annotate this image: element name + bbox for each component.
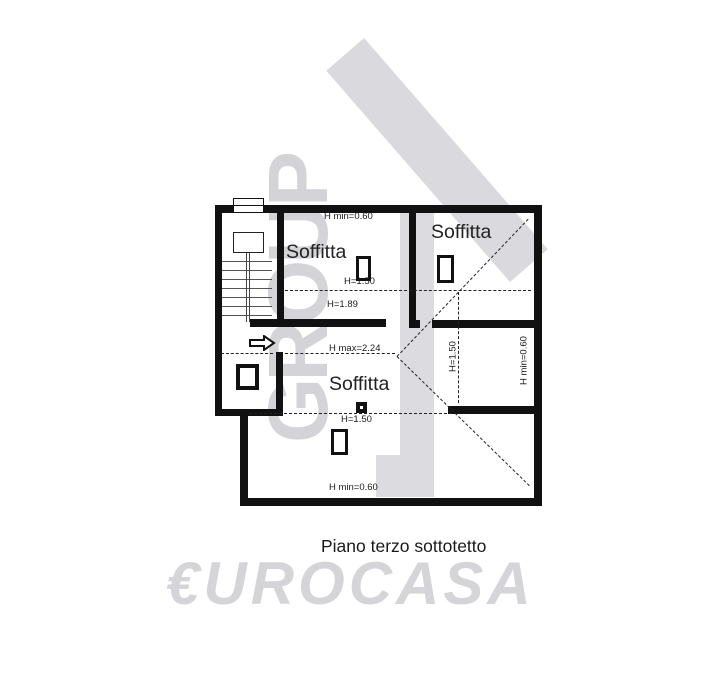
logo-vertical-bar-watermark — [400, 208, 434, 497]
dim-right-line-height: H=1.50 — [448, 322, 461, 392]
staircase-landing — [233, 232, 264, 253]
wall-bottom — [240, 498, 542, 506]
wall-left-lower — [240, 409, 248, 505]
logo-bar-foot-watermark — [376, 455, 402, 497]
wall-top-middle-divider — [409, 212, 416, 328]
chimney-symbol-vestibule — [236, 364, 259, 390]
flue-marker-symbol — [356, 402, 367, 413]
dim-top-min-height: H min=0.60 — [324, 211, 373, 222]
dim-lower-line-height: H=1.50 — [341, 414, 372, 425]
wall-door-stub — [409, 320, 420, 328]
wall-top — [215, 205, 542, 213]
wall-left-upper — [215, 205, 222, 416]
wall-right — [534, 205, 542, 506]
stairs-direction-arrow-icon — [249, 335, 276, 351]
dim-right-min-height: H min=0.60 — [519, 326, 532, 396]
floor-plan-page: GROUP €UROCASA Soffitta Soffitta Soffitt… — [0, 0, 714, 680]
dim-wall-height: H=1.89 — [327, 299, 358, 310]
wall-stair-divider — [277, 212, 284, 327]
height-line-h150-upper — [285, 290, 531, 291]
room-label-soffitta-topleft: Soffitta — [286, 241, 346, 264]
staircase-center-rail — [246, 253, 250, 322]
dim-max-height: H max=2.24 — [329, 343, 381, 354]
height-line-hmax-left — [221, 353, 273, 354]
dim-upper-line-height: H=1.50 — [344, 276, 375, 287]
room-label-soffitta-topright: Soffitta — [431, 221, 491, 244]
logo-diagonal-band-watermark — [326, 38, 547, 282]
window-symbol — [233, 198, 264, 213]
chimney-symbol-topright-room — [437, 255, 454, 283]
dim-bottom-min-height: H min=0.60 — [329, 482, 378, 493]
floor-caption: Piano terzo sottotetto — [321, 536, 486, 557]
room-label-soffitta-bottom: Soffitta — [329, 373, 389, 396]
wall-midright-room-bottom — [448, 406, 540, 414]
window-mullion — [234, 205, 263, 206]
wall-vestibule-east — [276, 352, 283, 414]
eurocasa-logo: €UROCASA — [166, 549, 566, 618]
chimney-symbol-bottom-room — [331, 429, 348, 455]
